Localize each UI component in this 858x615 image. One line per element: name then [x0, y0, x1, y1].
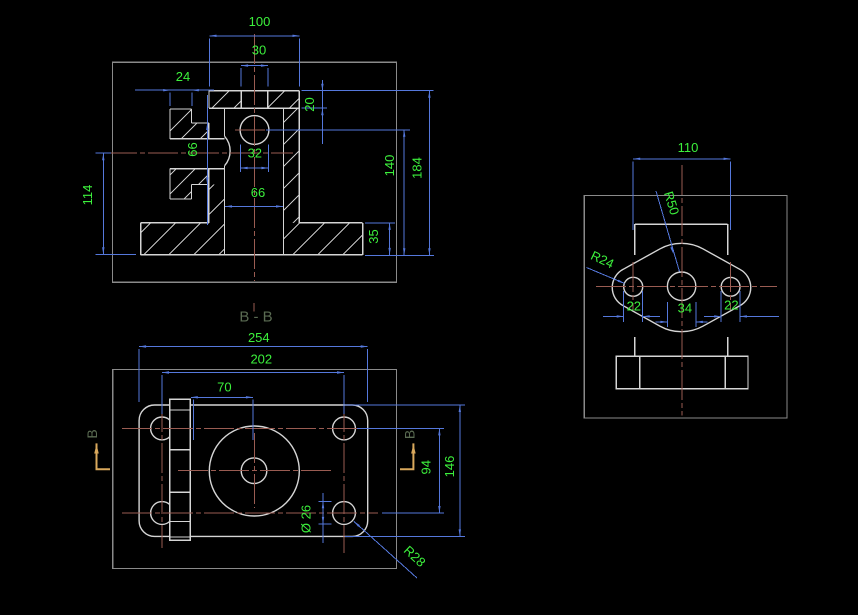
svg-text:Ø 26: Ø 26 — [298, 505, 313, 533]
svg-text:254: 254 — [248, 330, 270, 345]
svg-text:32: 32 — [248, 146, 262, 161]
svg-text:100: 100 — [249, 14, 271, 29]
svg-text:114: 114 — [80, 185, 95, 206]
svg-text:22: 22 — [627, 299, 641, 314]
svg-text:B - B: B - B — [239, 308, 272, 325]
svg-text:34: 34 — [678, 301, 692, 316]
svg-text:20: 20 — [302, 97, 317, 111]
svg-text:184: 184 — [409, 157, 424, 179]
svg-text:30: 30 — [252, 43, 266, 58]
svg-text:B: B — [84, 429, 100, 438]
svg-text:94: 94 — [418, 460, 433, 474]
svg-text:35: 35 — [366, 229, 381, 243]
svg-text:146: 146 — [442, 456, 457, 478]
svg-text:140: 140 — [382, 155, 397, 177]
svg-text:70: 70 — [217, 379, 231, 394]
svg-text:202: 202 — [250, 352, 272, 367]
svg-text:24: 24 — [176, 69, 190, 84]
svg-text:22: 22 — [724, 297, 738, 312]
svg-text:66: 66 — [185, 142, 200, 156]
svg-text:66: 66 — [251, 185, 265, 200]
svg-text:110: 110 — [678, 140, 699, 155]
svg-text:B: B — [402, 430, 418, 439]
